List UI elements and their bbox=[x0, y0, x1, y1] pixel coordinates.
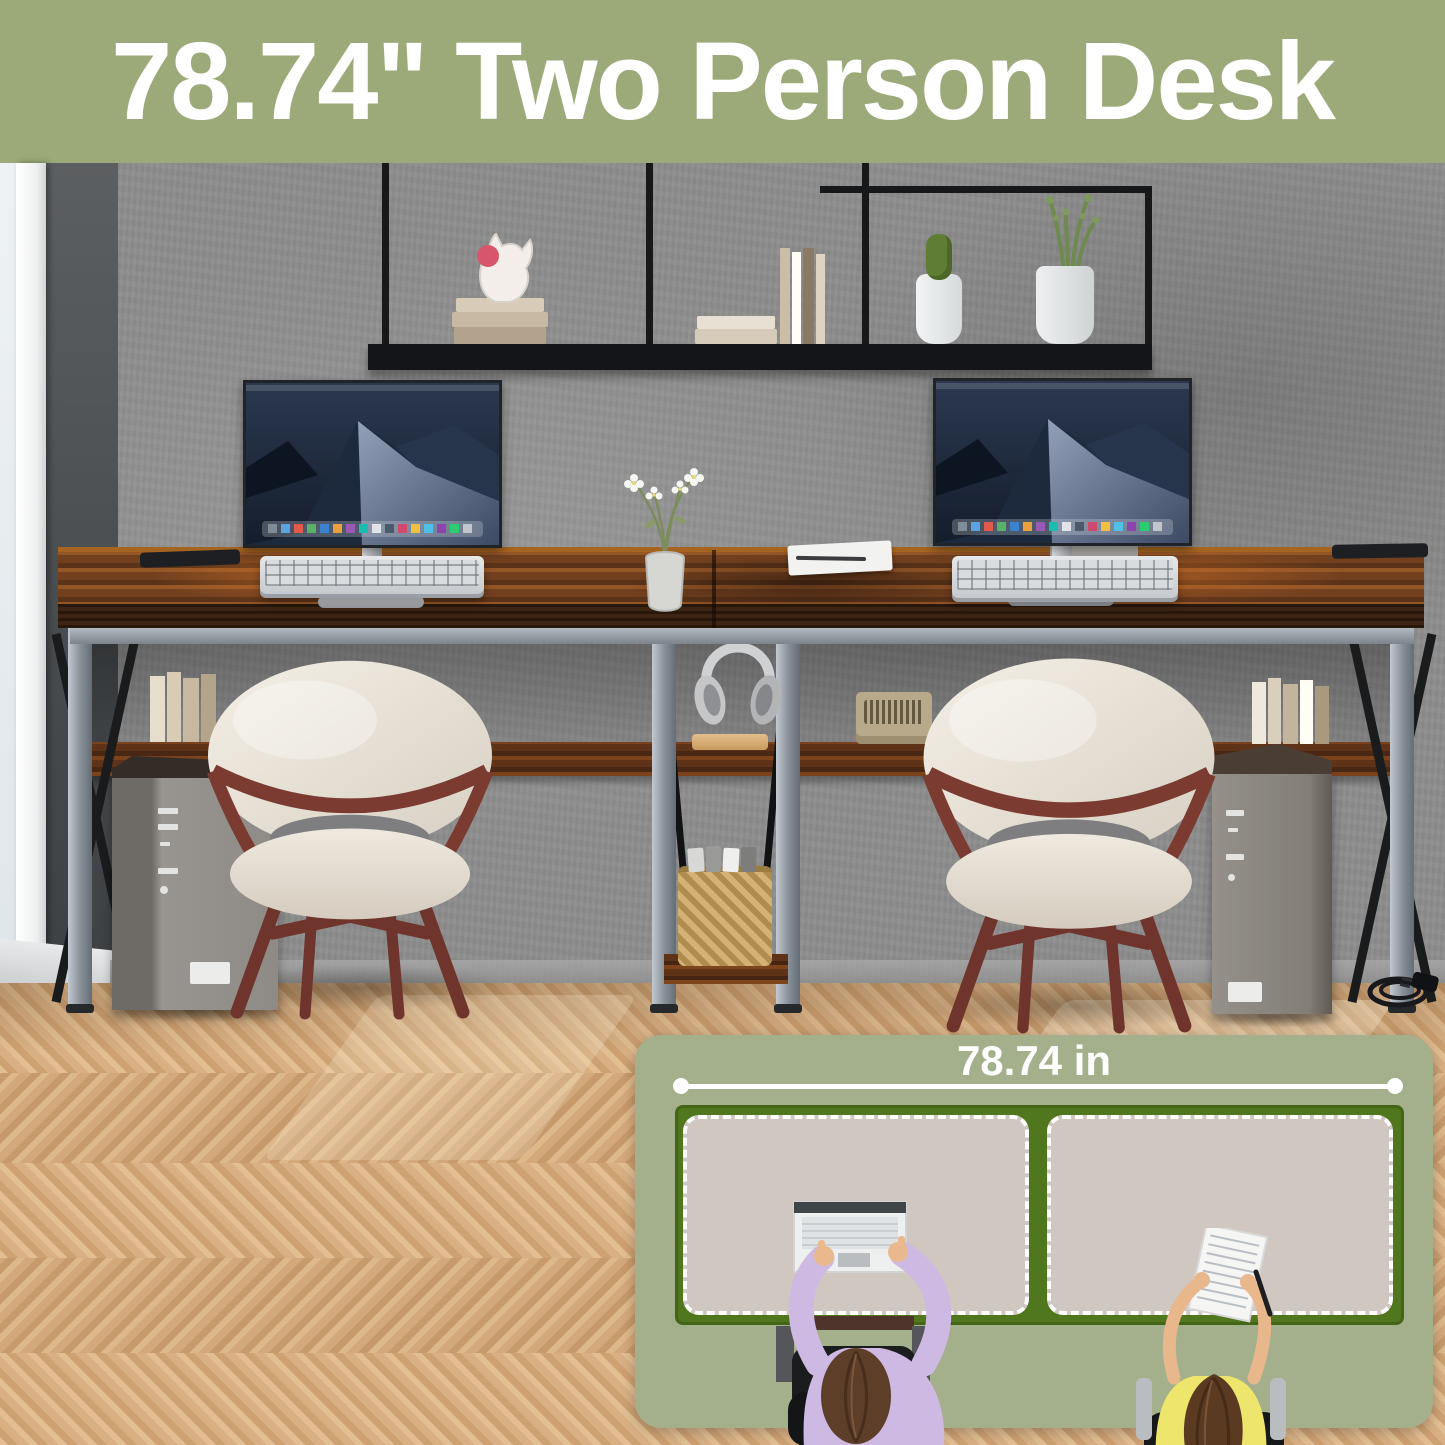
plant-pot bbox=[1036, 266, 1094, 344]
plug bbox=[1410, 971, 1439, 993]
keyboard-right bbox=[952, 556, 1178, 598]
leg-foot bbox=[774, 1004, 802, 1013]
measure-endpoint bbox=[1387, 1078, 1403, 1094]
notebook-with-pen bbox=[787, 540, 892, 575]
wall-shelf-upright bbox=[1145, 186, 1152, 346]
headband bbox=[706, 648, 770, 683]
chair-right bbox=[900, 642, 1238, 1034]
wall-shelf-board bbox=[368, 344, 1152, 370]
keyboard-keys bbox=[957, 560, 1173, 590]
cactus-plant bbox=[926, 234, 952, 280]
hand bbox=[1240, 1274, 1256, 1290]
pc-port bbox=[160, 842, 170, 846]
book bbox=[454, 327, 546, 344]
header-banner: 78.74" Two Person Desk bbox=[0, 0, 1445, 163]
pc-button bbox=[160, 886, 168, 894]
wicker-basket bbox=[678, 866, 772, 966]
desk-leg bbox=[652, 628, 676, 1006]
monitor-wallpaper bbox=[936, 381, 1189, 543]
pc-port bbox=[158, 808, 178, 814]
monitor-right bbox=[933, 378, 1192, 546]
monitor-left bbox=[243, 380, 502, 548]
window-frame bbox=[16, 163, 46, 998]
head-hair bbox=[821, 1348, 891, 1444]
book bbox=[1268, 678, 1281, 744]
cassette-tape bbox=[741, 847, 756, 872]
leg-foot bbox=[66, 1004, 94, 1013]
potted-plant-leaves bbox=[1026, 190, 1112, 276]
wall-shelf-upright bbox=[382, 163, 389, 346]
cassette-tape bbox=[706, 846, 721, 872]
book bbox=[1252, 682, 1266, 744]
book-stack bbox=[452, 298, 548, 344]
book bbox=[1300, 680, 1313, 744]
armrest bbox=[776, 1326, 794, 1382]
width-dimension-label: 78.74 in bbox=[635, 1037, 1433, 1085]
backrest-highlight bbox=[233, 681, 377, 760]
person-reading bbox=[1078, 1228, 1318, 1445]
pc-port bbox=[158, 824, 178, 830]
desk-leg bbox=[68, 628, 92, 1006]
measure-endpoint bbox=[673, 1078, 689, 1094]
dimension-diagram-panel: 78.74 in bbox=[635, 1035, 1433, 1428]
power-strip-right bbox=[1332, 543, 1428, 559]
monitor-base bbox=[318, 596, 424, 608]
cat-body bbox=[480, 234, 532, 302]
book bbox=[1315, 686, 1329, 744]
sleeve bbox=[902, 1254, 939, 1364]
power-plug-cable bbox=[1356, 936, 1444, 1014]
finger bbox=[898, 1236, 905, 1250]
book bbox=[803, 248, 814, 344]
monitor-wallpaper bbox=[246, 383, 499, 545]
wall-shelf-divider bbox=[862, 163, 869, 346]
book-stack bbox=[695, 316, 777, 344]
armrest bbox=[1136, 1378, 1152, 1440]
chair-seat bbox=[946, 834, 1192, 929]
flower-vase bbox=[606, 440, 724, 618]
person-with-laptop bbox=[752, 1196, 988, 1445]
chair-seat bbox=[230, 829, 470, 920]
sleeve bbox=[801, 1258, 822, 1364]
cat-figurine bbox=[466, 226, 538, 304]
book bbox=[1283, 684, 1298, 744]
book bbox=[452, 312, 548, 327]
book bbox=[780, 248, 790, 344]
finger bbox=[818, 1240, 825, 1254]
cassette-tape bbox=[687, 847, 705, 872]
leg-foot bbox=[650, 1004, 678, 1013]
book bbox=[150, 676, 165, 742]
pc-port bbox=[158, 868, 178, 874]
keyboard-keys bbox=[265, 560, 479, 586]
white-vase bbox=[916, 274, 962, 344]
desk-front-edge bbox=[58, 604, 1424, 628]
heart-ornament bbox=[477, 245, 499, 267]
wall-shelf-divider bbox=[646, 163, 653, 346]
armrest bbox=[1270, 1378, 1286, 1440]
shelf-books bbox=[1252, 678, 1332, 744]
book bbox=[816, 254, 825, 344]
book bbox=[697, 316, 775, 329]
chair-left bbox=[185, 645, 515, 1020]
page-title: 78.74" Two Person Desk bbox=[111, 18, 1334, 145]
keyboard-left bbox=[260, 556, 484, 594]
book bbox=[167, 672, 181, 742]
hand bbox=[1194, 1272, 1210, 1288]
book bbox=[695, 329, 777, 344]
standing-books bbox=[780, 248, 828, 344]
cassette-tape bbox=[722, 848, 739, 873]
book bbox=[792, 252, 801, 344]
backrest-highlight bbox=[949, 679, 1096, 762]
vase bbox=[646, 552, 684, 611]
product-image: 78.74" Two Person Desk bbox=[0, 0, 1445, 1445]
measurement-line bbox=[681, 1084, 1395, 1089]
